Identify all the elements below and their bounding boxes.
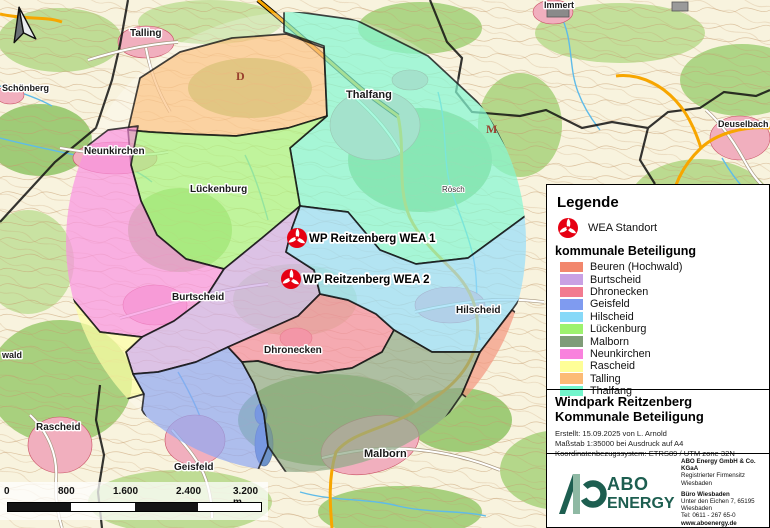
legend-item-label: Rascheid	[590, 360, 635, 372]
legend-item-label: Talling	[590, 373, 621, 385]
label-schoenberg: Schönberg	[2, 83, 49, 93]
company-section: ABO ENERGY ABO Energy GmbH & Co. KGaA Re…	[547, 453, 769, 528]
legend-swatch-malborn	[560, 336, 583, 347]
company-address2: Wiesbaden	[681, 505, 763, 512]
info-scale: Maßstab 1:35000 bei Ausdruck auf A4	[555, 439, 761, 449]
scale-tick-0: 0	[4, 486, 10, 497]
brand-energy: ENERGY	[607, 495, 675, 512]
scale-tick-1600: 1.600	[113, 486, 138, 497]
legend-swatch-neunkirchen	[560, 349, 583, 360]
legend-item: Lückenburg	[560, 323, 761, 335]
legend-item: Beuren (Hochwald)	[560, 261, 761, 273]
abo-energy-logo: ABO ENERGY	[557, 466, 675, 518]
map-title-line1: Windpark Reitzenberg	[555, 395, 761, 410]
area-letter-d: D	[236, 69, 245, 83]
wea-2-label: WP Reitzenberg WEA 2	[303, 274, 430, 286]
map-title-line2: Kommunale Beteiligung	[555, 410, 761, 425]
company-office: Büro Wiesbaden	[681, 491, 763, 498]
legend-item: Geisfeld	[560, 298, 761, 310]
company-phone: Tel: 0611 - 267 65-0	[681, 512, 763, 519]
legend-item-label: Neunkirchen	[590, 348, 651, 360]
info-created: Erstellt: 15.09.2025 von L. Arnold	[555, 429, 761, 439]
legend-subsection-title: kommunale Beteiligung	[555, 244, 761, 258]
legend-item: Rascheid	[560, 360, 761, 372]
legend-section: Legende WEA Standort kommunale Beteiligu…	[547, 185, 769, 389]
company-address1: Unter den Eichen 7, 65195	[681, 498, 763, 505]
company-website: www.aboenergy.de	[681, 520, 763, 527]
map-info-section: Windpark Reitzenberg Kommunale Beteiligu…	[547, 389, 769, 453]
wea-1-label: WP Reitzenberg WEA 1	[309, 233, 436, 245]
map-export-page: Talling Thalfang Immert Deuselbach Schön…	[0, 0, 770, 528]
legend-swatch-talling	[560, 373, 583, 384]
legend-swatch-hilscheid	[560, 312, 583, 323]
label-thalfang: Thalfang	[346, 89, 392, 101]
label-neunkirchen: Neunkirchen	[84, 146, 145, 157]
company-name: ABO Energy GmbH & Co. KGaA	[681, 458, 763, 472]
scale-bar-segments	[7, 502, 262, 512]
label-deuselbach: Deuselbach	[718, 119, 769, 129]
label-geisfeld: Geisfeld	[174, 462, 213, 473]
legend-item-label: Dhronecken	[590, 286, 648, 298]
legend-item: Dhronecken	[560, 286, 761, 298]
legend-item: Burtscheid	[560, 273, 761, 285]
scale-tick-800: 800	[58, 486, 75, 497]
legend-item: Malborn	[560, 335, 761, 347]
scale-bar: 0 800 1.600 2.400 3.200 m	[0, 482, 268, 520]
brand-abo: ABO	[607, 474, 649, 494]
company-registered: Registrierter Firmensitz Wiesbaden	[681, 472, 763, 486]
legend-item-label: Hilscheid	[590, 311, 634, 323]
label-malborn: Malborn	[364, 448, 407, 460]
area-letter-m: M	[486, 122, 497, 136]
legend-swatch-rascheid	[560, 361, 583, 372]
legend-title: Legende	[557, 194, 761, 211]
legend-wea-label: WEA Standort	[588, 222, 657, 234]
legend-panel: Legende WEA Standort kommunale Beteiligu…	[546, 184, 770, 528]
legend-wea-row: WEA Standort	[557, 217, 761, 239]
company-address-block: ABO Energy GmbH & Co. KGaA Registrierter…	[681, 458, 763, 527]
label-talling: Talling	[130, 28, 161, 39]
label-lueckenburg: Lückenburg	[190, 184, 247, 195]
scale-tick-2400: 2.400	[176, 486, 201, 497]
legend-item-label: Beuren (Hochwald)	[590, 261, 682, 273]
legend-item-label: Burtscheid	[590, 274, 641, 286]
legend-item-label: Geisfeld	[590, 298, 630, 310]
legend-item: Talling	[560, 373, 761, 385]
legend-swatch-geisfeld	[560, 299, 583, 310]
label-rascheid: Rascheid	[36, 422, 80, 433]
label-roesch: Rösch	[442, 185, 465, 194]
label-immert: Immert	[544, 0, 574, 10]
legend-item: Neunkirchen	[560, 348, 761, 360]
legend-swatch-lueckenburg	[560, 324, 583, 335]
legend-swatch-burtscheid	[560, 274, 583, 285]
wea-standort-icon	[557, 217, 579, 239]
label-hilscheid: Hilscheid	[456, 305, 500, 316]
legend-item-label: Lückenburg	[590, 323, 646, 335]
legend-swatch-dhronecken	[560, 287, 583, 298]
label-dhronecken: Dhronecken	[264, 345, 322, 356]
legend-item-label: Malborn	[590, 336, 629, 348]
legend-item: Hilscheid	[560, 311, 761, 323]
label-wald: wald	[1, 350, 22, 360]
label-burtscheid: Burtscheid	[172, 292, 224, 303]
legend-swatch-beuren	[560, 262, 583, 273]
